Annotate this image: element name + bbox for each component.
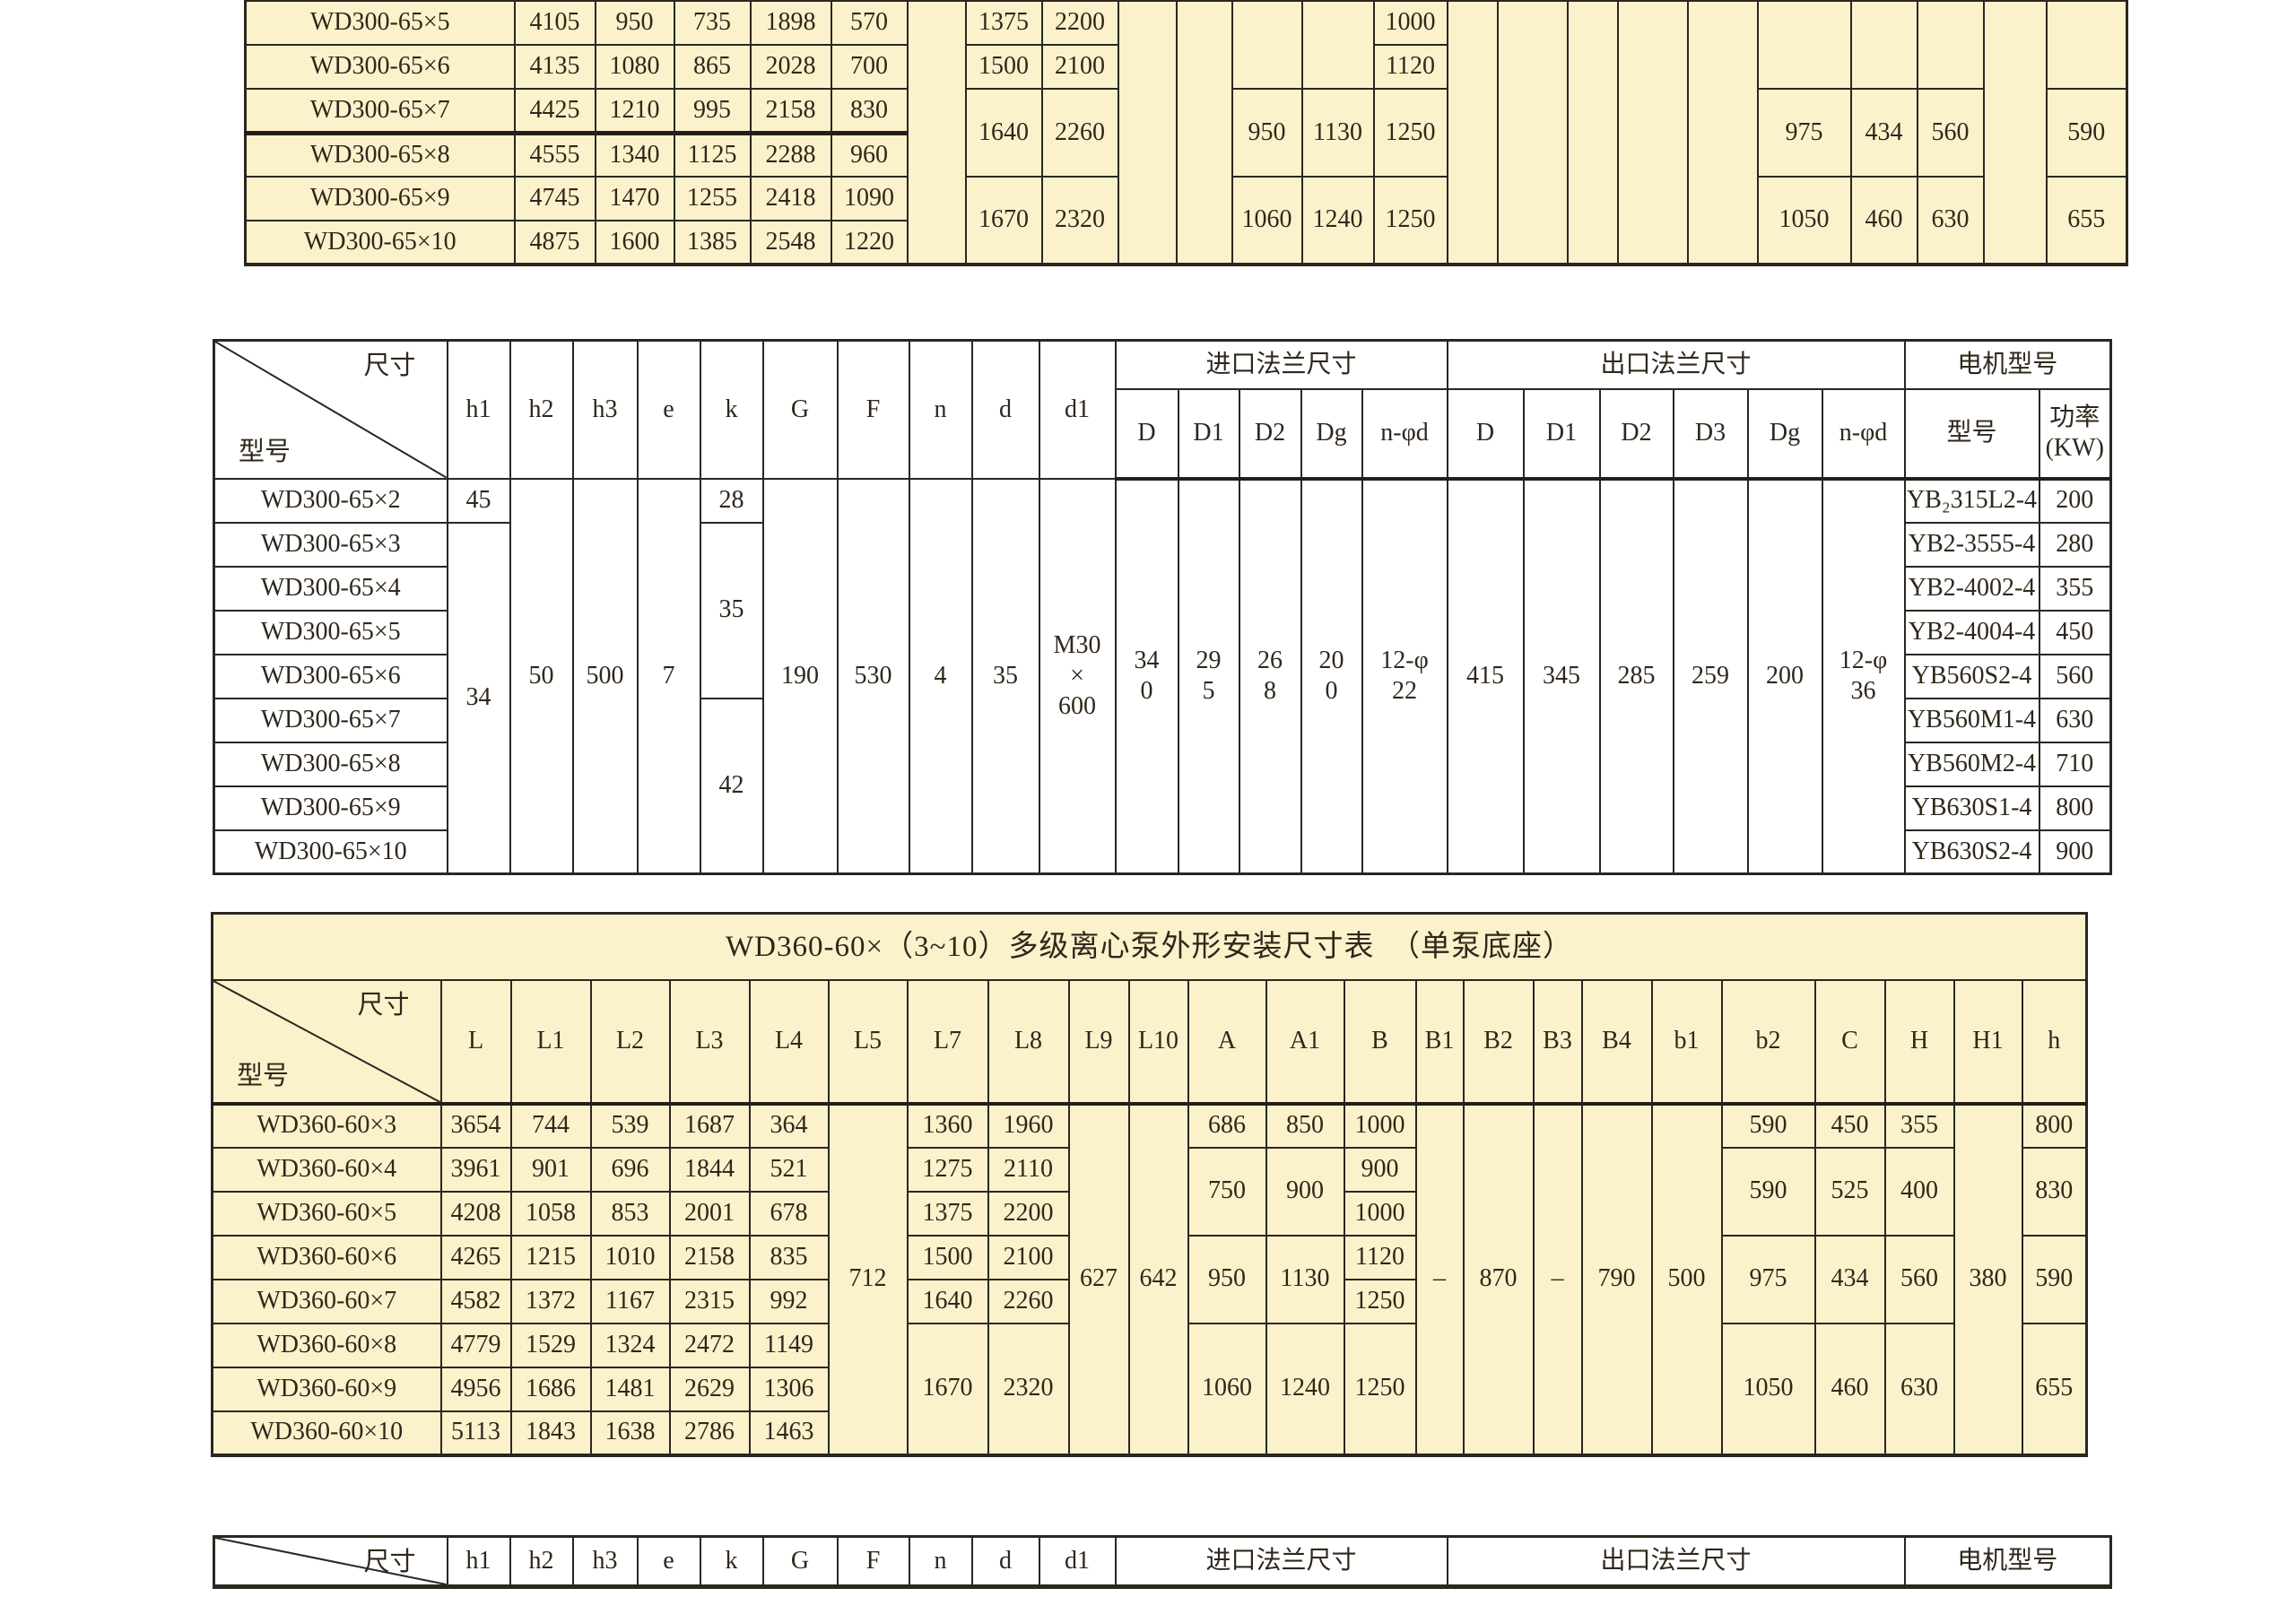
table-cell bbox=[1618, 1, 1688, 265]
column-header: D1 bbox=[1524, 389, 1600, 479]
column-header: n-φd bbox=[1822, 389, 1905, 479]
table-cell: YB₂315L2-4 bbox=[1905, 479, 2039, 523]
table-cell: 1149 bbox=[750, 1324, 829, 1367]
table-cell: 1125 bbox=[674, 133, 751, 177]
table-cell: 2100 bbox=[988, 1236, 1069, 1280]
table-cell: 2200 bbox=[988, 1192, 1069, 1236]
table-cell: 570 bbox=[831, 1, 908, 45]
table-cell: 4425 bbox=[515, 89, 596, 133]
column-header: d bbox=[972, 1537, 1039, 1587]
table-cell: 500 bbox=[1652, 1104, 1722, 1455]
table-cell: 1167 bbox=[591, 1280, 670, 1324]
table-cell: 830 bbox=[2022, 1148, 2087, 1236]
column-header: 出口法兰尺寸 bbox=[1448, 1537, 1905, 1587]
table-cell: 1640 bbox=[966, 89, 1042, 177]
table-cell: 1000 bbox=[1344, 1104, 1416, 1148]
table-cell: 2320 bbox=[988, 1324, 1069, 1455]
column-header: A bbox=[1188, 980, 1266, 1104]
table-cell: 4779 bbox=[441, 1324, 511, 1367]
table-cell: M30 × 600 bbox=[1039, 479, 1116, 874]
table-row: WD300-65×24550500728190530435M30 × 60034… bbox=[214, 479, 2111, 523]
table-cell bbox=[1177, 1, 1232, 265]
table-cell: 2418 bbox=[751, 177, 831, 221]
table-cell: 355 bbox=[1885, 1104, 1954, 1148]
table-wd360-outline-dimensions: WD360-60×（3~10）多级离心泵外形安装尺寸表 （单泵底座）尺寸型号LL… bbox=[211, 912, 2088, 1457]
column-header: k bbox=[700, 1537, 763, 1587]
diagonal-bottom-label: 型号 bbox=[237, 1061, 289, 1092]
table-cell: 1000 bbox=[1344, 1192, 1416, 1236]
table-cell bbox=[1984, 1, 2047, 265]
table-cell: 950 bbox=[596, 1, 674, 45]
column-header: A1 bbox=[1266, 980, 1344, 1104]
diagonal-bottom-label: 型号 bbox=[239, 437, 291, 468]
table-cell: 995 bbox=[674, 89, 751, 133]
table-cell: 530 bbox=[838, 479, 909, 874]
table-cell: YB2-4004-4 bbox=[1905, 611, 2039, 655]
table-cell: 590 bbox=[2047, 89, 2127, 177]
table-cell: 4265 bbox=[441, 1236, 511, 1280]
column-header: 进口法兰尺寸 bbox=[1116, 341, 1448, 389]
table-cell: 450 bbox=[2039, 611, 2111, 655]
diagonal-top-label: 尺寸 bbox=[357, 990, 409, 1021]
column-header: h3 bbox=[573, 1537, 638, 1587]
table-cell: 400 bbox=[1885, 1148, 1954, 1236]
column-header: L3 bbox=[670, 980, 750, 1104]
table-cell: 790 bbox=[1582, 1104, 1652, 1455]
table-cell: 901 bbox=[511, 1148, 591, 1192]
table-cell: 712 bbox=[829, 1104, 908, 1455]
table-cell bbox=[1688, 1, 1758, 265]
table-cell: 950 bbox=[1188, 1236, 1266, 1324]
table-cell: 190 bbox=[763, 479, 838, 874]
row-model-label: WD300-65×4 bbox=[214, 567, 448, 611]
header-row: WD360-60×（3~10）多级离心泵外形安装尺寸表 （单泵底座） bbox=[213, 914, 2087, 980]
table-cell: 4555 bbox=[515, 133, 596, 177]
row-model-label: WD300-65×5 bbox=[246, 1, 515, 45]
table-cell: 850 bbox=[1266, 1104, 1344, 1148]
table-cell: 1060 bbox=[1232, 177, 1302, 265]
column-header: B2 bbox=[1464, 980, 1534, 1104]
table-cell: 35 bbox=[972, 479, 1039, 874]
table-cell: 2158 bbox=[670, 1236, 750, 1280]
table-cell: 1240 bbox=[1302, 177, 1374, 265]
table-cell: 1385 bbox=[674, 221, 751, 265]
column-header: n bbox=[909, 1537, 972, 1587]
column-header: 电机型号 bbox=[1905, 1537, 2111, 1587]
table-cell: 2260 bbox=[1042, 89, 1118, 177]
table-cell: 1120 bbox=[1344, 1236, 1416, 1280]
table-cell: 590 bbox=[1722, 1148, 1815, 1236]
table-cell: 975 bbox=[1758, 89, 1851, 177]
column-header: n bbox=[909, 341, 972, 479]
table-cell: 355 bbox=[2039, 567, 2111, 611]
row-model-label: WD300-65×7 bbox=[214, 699, 448, 742]
table-cell: YB560S2-4 bbox=[1905, 655, 2039, 699]
table-cell: 710 bbox=[2039, 742, 2111, 786]
diagonal-top-label: 尺寸 bbox=[363, 1547, 415, 1578]
column-header: h1 bbox=[448, 341, 510, 479]
table-title: WD360-60×（3~10）多级离心泵外形安装尺寸表 （单泵底座） bbox=[213, 914, 2087, 980]
table-cell: 1324 bbox=[591, 1324, 670, 1367]
table-cell: 1470 bbox=[596, 177, 674, 221]
table-cell: 5113 bbox=[441, 1411, 511, 1455]
table-cell: 364 bbox=[750, 1104, 829, 1148]
table-row: WD300-65×541059507351898570137522001000 bbox=[246, 1, 2127, 45]
column-header: L10 bbox=[1129, 980, 1188, 1104]
table-cell: 2629 bbox=[670, 1367, 750, 1411]
pump-dimension-sheet: { "colors": { "page_bg": "#ffffff", "yel… bbox=[0, 0, 2296, 1623]
table-cell: 835 bbox=[750, 1236, 829, 1280]
table-cell: 735 bbox=[674, 1, 751, 45]
table-cell: YB560M1-4 bbox=[1905, 699, 2039, 742]
row-model-label: WD300-65×9 bbox=[246, 177, 515, 221]
table-cell: 29 5 bbox=[1178, 479, 1239, 874]
column-header: F bbox=[838, 1537, 909, 1587]
column-header: G bbox=[763, 341, 838, 479]
table-cell: 1050 bbox=[1722, 1324, 1815, 1455]
column-header: D3 bbox=[1674, 389, 1748, 479]
table-cell: 560 bbox=[2039, 655, 2111, 699]
table-cell: 1050 bbox=[1758, 177, 1851, 265]
table-cell: 1090 bbox=[831, 177, 908, 221]
table-cell: 3654 bbox=[441, 1104, 511, 1148]
table-flange-motor-header-cropped: 尺寸h1h2h3ekGFndd1进口法兰尺寸出口法兰尺寸电机型号 bbox=[213, 1535, 2112, 1589]
table-cell: 4208 bbox=[441, 1192, 511, 1236]
column-header: d1 bbox=[1039, 1537, 1116, 1587]
table-cell: 4956 bbox=[441, 1367, 511, 1411]
column-header: k bbox=[700, 341, 763, 479]
table-cell: 1060 bbox=[1188, 1324, 1266, 1455]
table-cell: 50 bbox=[510, 479, 573, 874]
table-cell: 1638 bbox=[591, 1411, 670, 1455]
row-model-label: WD360-60×7 bbox=[213, 1280, 441, 1324]
column-header: B bbox=[1344, 980, 1416, 1104]
table-cell: 560 bbox=[1918, 89, 1984, 177]
table-cell: 539 bbox=[591, 1104, 670, 1148]
table-cell: 630 bbox=[2039, 699, 2111, 742]
table-cell: 12-φ 36 bbox=[1822, 479, 1905, 874]
table-cell: 2028 bbox=[751, 45, 831, 89]
column-header: b1 bbox=[1652, 980, 1722, 1104]
table-cell: 1463 bbox=[750, 1411, 829, 1455]
table-cell: 960 bbox=[831, 133, 908, 177]
column-header: L1 bbox=[511, 980, 591, 1104]
row-model-label: WD300-65×10 bbox=[214, 830, 448, 874]
header-row: 尺寸h1h2h3ekGFndd1进口法兰尺寸出口法兰尺寸电机型号 bbox=[214, 1537, 2111, 1587]
table-cell: 26 8 bbox=[1239, 479, 1301, 874]
column-header: 型号 bbox=[1905, 389, 2039, 479]
table-cell: 560 bbox=[1885, 1236, 1954, 1324]
column-header: B3 bbox=[1534, 980, 1582, 1104]
table-cell: 34 bbox=[448, 523, 510, 874]
column-header: h1 bbox=[448, 1537, 510, 1587]
column-header: d1 bbox=[1039, 341, 1116, 479]
table-cell: 655 bbox=[2022, 1324, 2087, 1455]
table-cell: 2260 bbox=[988, 1280, 1069, 1324]
table-cell: 434 bbox=[1815, 1236, 1885, 1324]
table-cell: 460 bbox=[1851, 177, 1918, 265]
column-header: h3 bbox=[573, 341, 638, 479]
table-cell: 2158 bbox=[751, 89, 831, 133]
table-cell: 900 bbox=[2039, 830, 2111, 874]
diagonal-header-cell: 尺寸 bbox=[214, 1537, 448, 1587]
table-cell: 1500 bbox=[966, 45, 1042, 89]
table-cell: 870 bbox=[1464, 1104, 1534, 1455]
table-cell: 900 bbox=[1344, 1148, 1416, 1192]
table-cell: 750 bbox=[1188, 1148, 1266, 1236]
row-model-label: WD300-65×10 bbox=[246, 221, 515, 265]
table-cell: 696 bbox=[591, 1148, 670, 1192]
table-cell: 2315 bbox=[670, 1280, 750, 1324]
table-cell: 1481 bbox=[591, 1367, 670, 1411]
row-model-label: WD360-60×8 bbox=[213, 1324, 441, 1367]
table-cell: 1080 bbox=[596, 45, 674, 89]
table-cell: 4 bbox=[909, 479, 972, 874]
column-header: 出口法兰尺寸 bbox=[1448, 341, 1905, 389]
table-cell: 7 bbox=[638, 479, 700, 874]
row-model-label: WD360-60×10 bbox=[213, 1411, 441, 1455]
table-cell: 655 bbox=[2047, 177, 2127, 265]
table-cell: 1120 bbox=[1374, 45, 1448, 89]
table-cell: 500 bbox=[573, 479, 638, 874]
column-header: h2 bbox=[510, 341, 573, 479]
table-cell: 1250 bbox=[1344, 1324, 1416, 1455]
column-header: C bbox=[1815, 980, 1885, 1104]
row-model-label: WD300-65×3 bbox=[214, 523, 448, 567]
column-header: B1 bbox=[1416, 980, 1464, 1104]
column-header: 功率 (KW) bbox=[2039, 389, 2111, 479]
column-header: L7 bbox=[908, 980, 988, 1104]
row-model-label: WD300-65×2 bbox=[214, 479, 448, 523]
header-row: 尺寸型号LL1L2L3L4L5L7L8L9L10AA1BB1B2B3B4b1b2… bbox=[213, 980, 2087, 1104]
table-cell: 1670 bbox=[908, 1324, 988, 1455]
column-header: D bbox=[1448, 389, 1524, 479]
table-cell bbox=[1498, 1, 1568, 265]
column-header: F bbox=[838, 341, 909, 479]
table-cell: 1250 bbox=[1374, 89, 1448, 177]
table-cell: 521 bbox=[750, 1148, 829, 1192]
table-cell: 1600 bbox=[596, 221, 674, 265]
column-header: D1 bbox=[1178, 389, 1239, 479]
table-cell: 2786 bbox=[670, 1411, 750, 1455]
table-cell bbox=[1851, 1, 1918, 89]
table-cell: 1843 bbox=[511, 1411, 591, 1455]
table-cell: 259 bbox=[1674, 479, 1748, 874]
column-header: h bbox=[2022, 980, 2087, 1104]
table-cell bbox=[2047, 1, 2127, 89]
table-cell: 12-φ 22 bbox=[1362, 479, 1448, 874]
table-cell: 678 bbox=[750, 1192, 829, 1236]
table-cell: 42 bbox=[700, 699, 763, 874]
table-cell: – bbox=[1416, 1104, 1464, 1455]
column-header: 进口法兰尺寸 bbox=[1116, 1537, 1448, 1587]
column-header: Dg bbox=[1748, 389, 1822, 479]
column-header: D2 bbox=[1239, 389, 1301, 479]
table-cell: 865 bbox=[674, 45, 751, 89]
table-cell: 200 bbox=[1748, 479, 1822, 874]
column-header: L8 bbox=[988, 980, 1069, 1104]
table-cell bbox=[908, 1, 966, 265]
table-cell: 2320 bbox=[1042, 177, 1118, 265]
diagonal-header-cell: 尺寸型号 bbox=[214, 341, 448, 479]
table-cell: 1340 bbox=[596, 133, 674, 177]
table-wd300-outline-dimensions-cropped: WD300-65×541059507351898570137522001000W… bbox=[244, 0, 2128, 266]
table-cell: 525 bbox=[1815, 1148, 1885, 1236]
table-cell: 415 bbox=[1448, 479, 1524, 874]
table-cell: 200 bbox=[2039, 479, 2111, 523]
table-cell: 1058 bbox=[511, 1192, 591, 1236]
column-header: e bbox=[638, 341, 700, 479]
table-cell: 460 bbox=[1815, 1324, 1885, 1455]
table-cell: 1898 bbox=[751, 1, 831, 45]
table-cell: 975 bbox=[1722, 1236, 1815, 1324]
row-model-label: WD300-65×9 bbox=[214, 786, 448, 830]
table-cell: 380 bbox=[1954, 1104, 2022, 1455]
table-cell: 35 bbox=[700, 523, 763, 699]
table-cell: 1687 bbox=[670, 1104, 750, 1148]
diagonal-header-cell: 尺寸型号 bbox=[213, 980, 441, 1104]
table-wd300-flange-motor-dimensions: 尺寸型号h1h2h3ekGFndd1进口法兰尺寸出口法兰尺寸电机型号DD1D2D… bbox=[213, 339, 2112, 875]
table-cell: 590 bbox=[2022, 1236, 2087, 1324]
row-model-label: WD300-65×5 bbox=[214, 611, 448, 655]
column-header: L bbox=[441, 980, 511, 1104]
table-cell: 2288 bbox=[751, 133, 831, 177]
column-header: G bbox=[763, 1537, 838, 1587]
table-cell: YB630S2-4 bbox=[1905, 830, 2039, 874]
table-cell bbox=[1568, 1, 1618, 265]
table-cell: 1275 bbox=[908, 1148, 988, 1192]
table-cell: 1250 bbox=[1374, 177, 1448, 265]
row-model-label: WD300-65×6 bbox=[214, 655, 448, 699]
table-cell: 642 bbox=[1129, 1104, 1188, 1455]
table-cell bbox=[1918, 1, 1984, 89]
table-cell: – bbox=[1534, 1104, 1582, 1455]
column-header: H bbox=[1885, 980, 1954, 1104]
table-cell: 1360 bbox=[908, 1104, 988, 1148]
row-model-label: WD300-65×6 bbox=[246, 45, 515, 89]
table-cell: 992 bbox=[750, 1280, 829, 1324]
table-cell: 1960 bbox=[988, 1104, 1069, 1148]
table-cell: 1375 bbox=[966, 1, 1042, 45]
table-cell: 900 bbox=[1266, 1148, 1344, 1236]
table-cell: 2472 bbox=[670, 1324, 750, 1367]
row-model-label: WD360-60×9 bbox=[213, 1367, 441, 1411]
table-cell: 950 bbox=[1232, 89, 1302, 177]
table-cell bbox=[1232, 1, 1302, 89]
table-cell: 1210 bbox=[596, 89, 674, 133]
table-cell: 4582 bbox=[441, 1280, 511, 1324]
diagonal-top-label: 尺寸 bbox=[363, 351, 415, 382]
table-cell: 345 bbox=[1524, 479, 1600, 874]
column-header: L2 bbox=[591, 980, 670, 1104]
table-cell: 1500 bbox=[908, 1236, 988, 1280]
column-header: d bbox=[972, 341, 1039, 479]
table-cell: 1844 bbox=[670, 1148, 750, 1192]
column-header: L4 bbox=[750, 980, 829, 1104]
row-model-label: WD300-65×8 bbox=[214, 742, 448, 786]
column-header: e bbox=[638, 1537, 700, 1587]
column-header: D bbox=[1116, 389, 1178, 479]
table-cell: 1372 bbox=[511, 1280, 591, 1324]
table-cell: YB560M2-4 bbox=[1905, 742, 2039, 786]
table-row: WD360-60×3365474453916873647121360196062… bbox=[213, 1104, 2087, 1148]
table-cell: YB630S1-4 bbox=[1905, 786, 2039, 830]
table-cell: 700 bbox=[831, 45, 908, 89]
table-cell: 1375 bbox=[908, 1192, 988, 1236]
table-cell: 1686 bbox=[511, 1367, 591, 1411]
table-cell: 1529 bbox=[511, 1324, 591, 1367]
table-cell: 627 bbox=[1069, 1104, 1129, 1455]
table-cell: 1670 bbox=[966, 177, 1042, 265]
table-cell: 1255 bbox=[674, 177, 751, 221]
table-cell bbox=[1448, 1, 1498, 265]
row-model-label: WD300-65×7 bbox=[246, 89, 515, 133]
column-header: b2 bbox=[1722, 980, 1815, 1104]
table-cell: 4135 bbox=[515, 45, 596, 89]
column-header: D2 bbox=[1600, 389, 1674, 479]
table-cell: 853 bbox=[591, 1192, 670, 1236]
table-cell: 2110 bbox=[988, 1148, 1069, 1192]
table-cell: 2001 bbox=[670, 1192, 750, 1236]
table-cell bbox=[1758, 1, 1851, 89]
table-cell bbox=[1302, 1, 1374, 89]
table-cell: 20 0 bbox=[1301, 479, 1362, 874]
table-cell: 686 bbox=[1188, 1104, 1266, 1148]
table-cell: 800 bbox=[2022, 1104, 2087, 1148]
table-cell: 800 bbox=[2039, 786, 2111, 830]
table-cell: 630 bbox=[1918, 177, 1984, 265]
table-cell: 45 bbox=[448, 479, 510, 523]
table-cell: YB2-3555-4 bbox=[1905, 523, 2039, 567]
row-model-label: WD360-60×5 bbox=[213, 1192, 441, 1236]
table-cell: 1306 bbox=[750, 1367, 829, 1411]
column-header: n-φd bbox=[1362, 389, 1448, 479]
table-cell: 630 bbox=[1885, 1324, 1954, 1455]
table-cell: 4745 bbox=[515, 177, 596, 221]
table-cell: 28 bbox=[700, 479, 763, 523]
table-cell: 1250 bbox=[1344, 1280, 1416, 1324]
table-cell: 280 bbox=[2039, 523, 2111, 567]
table-cell: 1240 bbox=[1266, 1324, 1344, 1455]
table-cell: 2548 bbox=[751, 221, 831, 265]
table-cell: 1010 bbox=[591, 1236, 670, 1280]
table-cell bbox=[1118, 1, 1177, 265]
column-header: L9 bbox=[1069, 980, 1129, 1104]
column-header: H1 bbox=[1954, 980, 2022, 1104]
table-cell: 830 bbox=[831, 89, 908, 133]
row-model-label: WD360-60×3 bbox=[213, 1104, 441, 1148]
row-model-label: WD360-60×6 bbox=[213, 1236, 441, 1280]
column-header: L5 bbox=[829, 980, 908, 1104]
table-cell: 1000 bbox=[1374, 1, 1448, 45]
table-cell: 450 bbox=[1815, 1104, 1885, 1148]
table-cell: 434 bbox=[1851, 89, 1918, 177]
table-cell: 1130 bbox=[1266, 1236, 1344, 1324]
table-cell: YB2-4002-4 bbox=[1905, 567, 2039, 611]
table-cell: 1130 bbox=[1302, 89, 1374, 177]
row-model-label: WD300-65×8 bbox=[246, 133, 515, 177]
table-cell: 1220 bbox=[831, 221, 908, 265]
table-cell: 4875 bbox=[515, 221, 596, 265]
table-cell: 34 0 bbox=[1116, 479, 1178, 874]
table-cell: 285 bbox=[1600, 479, 1674, 874]
column-header: B4 bbox=[1582, 980, 1652, 1104]
row-model-label: WD360-60×4 bbox=[213, 1148, 441, 1192]
column-header: h2 bbox=[510, 1537, 573, 1587]
column-header: 电机型号 bbox=[1905, 341, 2111, 389]
table-cell: 2100 bbox=[1042, 45, 1118, 89]
table-cell: 1640 bbox=[908, 1280, 988, 1324]
